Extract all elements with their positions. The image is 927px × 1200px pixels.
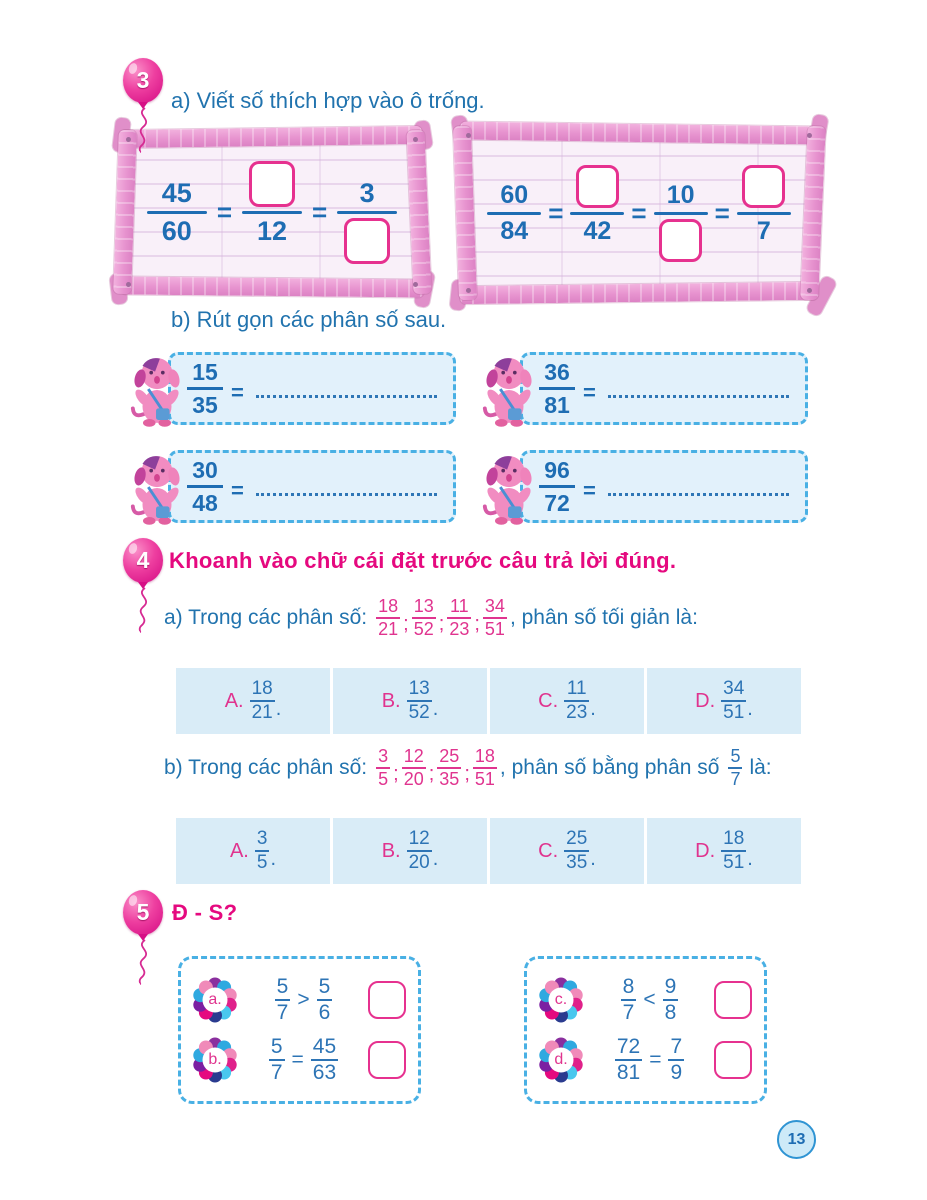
denominator: 42 (584, 219, 612, 244)
answer-box[interactable] (368, 981, 406, 1019)
fraction-step-3: 7 (737, 152, 791, 275)
numerator: 36 (544, 360, 570, 384)
fraction: 3451 (483, 597, 507, 639)
ex4-title: Khoanh vào chữ cái đặt trước câu trả lời… (169, 548, 676, 574)
numerator: 10 (667, 183, 695, 208)
true-false-box-1: a. 57 > 56 b. 57 = 4563 (178, 956, 421, 1104)
answer-frame-2: 60 84 = 42 = 10 = 7 (456, 124, 822, 302)
numerator: 60 (500, 183, 528, 208)
numerator: 3 (360, 180, 375, 207)
nail-dot (126, 282, 131, 287)
answer-line[interactable] (256, 493, 437, 496)
denominator: 7 (757, 219, 771, 244)
ex4-question-a: a) Trong các phân số: 1821 ; 1352 ; 1123… (164, 597, 698, 639)
fraction: 2535 (437, 747, 461, 789)
balloon-icon: 5 (123, 890, 163, 935)
fraction-bar (539, 485, 575, 488)
equals-sign: = (217, 197, 232, 228)
fraction: 1851 (473, 747, 497, 789)
fraction: 98 (663, 976, 679, 1024)
equals-sign: = (231, 478, 244, 504)
fraction-step-1: 42 (570, 152, 624, 275)
fraction: 57 (269, 1036, 285, 1084)
equation-2: 60 84 = 42 = 10 = 7 (487, 152, 791, 275)
simplify-box-4: 96 72 = (520, 450, 808, 523)
dog-mascot-icon (128, 352, 186, 430)
fraction-bar (187, 387, 223, 390)
exercise-number: 3 (137, 67, 150, 94)
denominator: 48 (192, 491, 218, 515)
true-false-box-2: c. 87 < 98 d. 7281 = 79 (524, 956, 767, 1104)
denominator: 81 (544, 393, 570, 417)
fraction: 1821 (250, 679, 275, 723)
dog-mascot-icon (480, 352, 538, 430)
flower-label-icon: b. (191, 1036, 239, 1084)
statement-d: d. 7281 = 79 (537, 1036, 752, 1084)
fraction: 1851 (721, 829, 746, 873)
ex4-options-a: A. 1821 . B. 1352 . C. 1123 . D. 3451 . (176, 668, 801, 734)
equals-sign: = (583, 380, 596, 406)
answer-line[interactable] (608, 395, 789, 398)
answer-box[interactable] (576, 165, 619, 208)
balloon-icon: 4 (123, 538, 163, 583)
fraction-bar (187, 485, 223, 488)
denominator: 60 (162, 218, 192, 245)
nail-dot (466, 288, 471, 293)
nail-dot (807, 288, 812, 293)
exercise-4-balloon-badge: 4 (120, 538, 166, 633)
answer-box[interactable] (714, 981, 752, 1019)
option-b[interactable]: B. 1352 . (333, 668, 487, 734)
fraction: 30 48 (187, 458, 223, 515)
balloon-icon: 3 (123, 58, 163, 103)
simplify-box-1: 15 35 = (168, 352, 456, 425)
fraction: 1220 (402, 747, 426, 789)
exercise-3-balloon-badge: 3 (120, 58, 166, 153)
simplify-box-2: 36 81 = (520, 352, 808, 425)
equals-sign: = (631, 198, 646, 229)
exercise-number: 4 (137, 547, 150, 574)
flower-label-icon: c. (537, 976, 585, 1024)
denominator: 35 (192, 393, 218, 417)
fraction: 57 (275, 976, 291, 1024)
answer-box[interactable] (368, 1041, 406, 1079)
ex3-part-b-title: b) Rút gọn các phân số sau. (171, 307, 446, 333)
exercise-5-balloon-badge: 5 (120, 890, 166, 985)
equals-sign: = (548, 198, 563, 229)
fraction: 1352 (412, 597, 436, 639)
denominator: 72 (544, 491, 570, 515)
fraction: 4563 (311, 1036, 338, 1084)
statement-letter: b. (191, 1036, 239, 1084)
balloon-string (131, 939, 155, 985)
fraction: 1220 (407, 829, 432, 873)
equals-sign: = (715, 198, 730, 229)
option-a[interactable]: A. 1821 . (176, 668, 330, 734)
fraction: 7281 (615, 1036, 642, 1084)
answer-box[interactable] (249, 161, 295, 207)
statement-c: c. 87 < 98 (537, 976, 752, 1024)
answer-line[interactable] (256, 395, 437, 398)
flower-label-icon: a. (191, 976, 239, 1024)
fraction: 35 (255, 829, 270, 873)
fraction-step-1: 12 (242, 151, 302, 274)
ex4-options-b: A. 35 . B. 1220 . C. 2535 . D. 1851 . (176, 818, 801, 884)
equation-1: 45 60 = 12 = 3 (147, 151, 397, 274)
answer-box[interactable] (344, 218, 390, 264)
statement-letter: c. (537, 976, 585, 1024)
numerator: 30 (192, 458, 218, 482)
flower-label-icon: d. (537, 1036, 585, 1084)
statement-letter: a. (191, 976, 239, 1024)
equals-sign: = (583, 478, 596, 504)
comparison-operator: > (297, 988, 309, 1012)
equals-sign: = (312, 197, 327, 228)
fraction: 79 (668, 1036, 684, 1084)
denominator: 12 (257, 218, 287, 245)
fraction: 56 (317, 976, 333, 1024)
numerator: 15 (192, 360, 218, 384)
comparison-operator: = (292, 1048, 304, 1072)
numerator: 96 (544, 458, 570, 482)
fraction: 3451 (721, 679, 746, 723)
fraction-given: 45 60 (147, 151, 207, 274)
option-d[interactable]: D. 3451 . (647, 668, 801, 734)
fraction: 15 35 (187, 360, 223, 417)
option-b[interactable]: B. 1220 . (333, 818, 487, 884)
answer-box[interactable] (659, 219, 702, 262)
dog-mascot-icon (480, 450, 538, 528)
fraction: 96 72 (539, 458, 575, 515)
ex3-part-a-title: a) Viết số thích hợp vào ô trống. (171, 88, 485, 114)
option-c[interactable]: C. 2535 . (490, 818, 644, 884)
fraction-given: 60 84 (487, 152, 541, 275)
dog-mascot-icon (128, 450, 186, 528)
fraction-step-2: 3 (337, 151, 397, 274)
option-c[interactable]: C. 1123 . (490, 668, 644, 734)
balloon-string (131, 587, 155, 633)
statement-letter: d. (537, 1036, 585, 1084)
option-d[interactable]: D. 1851 . (647, 818, 801, 884)
balloon-string (131, 107, 155, 153)
answer-line[interactable] (608, 493, 789, 496)
fraction-step-2: 10 (654, 152, 708, 275)
nail-dot (413, 282, 418, 287)
answer-frame-1: 45 60 = 12 = 3 (116, 128, 428, 296)
fraction: 35 (376, 747, 390, 789)
page-number: 13 (777, 1120, 816, 1159)
statement-b: b. 57 = 4563 (191, 1036, 406, 1084)
fraction: 36 81 (539, 360, 575, 417)
fraction-bar (539, 387, 575, 390)
answer-box[interactable] (714, 1041, 752, 1079)
comparison-operator: = (649, 1048, 661, 1072)
equals-sign: = (231, 380, 244, 406)
exercise-number: 5 (137, 899, 150, 926)
ex4-question-b: b) Trong các phân số: 35 ; 1220 ; 2535 ;… (164, 747, 772, 789)
answer-box[interactable] (742, 165, 785, 208)
fraction: 1123 (564, 679, 589, 723)
statement-a: a. 57 > 56 (191, 976, 406, 1024)
denominator: 84 (500, 219, 528, 244)
fraction: 2535 (564, 829, 589, 873)
ex5-title: Đ - S? (172, 900, 237, 926)
fraction: 57 (728, 747, 742, 789)
fraction: 1821 (376, 597, 400, 639)
fraction: 1352 (407, 679, 432, 723)
fraction: 87 (621, 976, 637, 1024)
option-a[interactable]: A. 35 . (176, 818, 330, 884)
fraction: 1123 (447, 597, 471, 639)
comparison-operator: < (643, 988, 655, 1012)
numerator: 45 (162, 180, 192, 207)
simplify-box-3: 30 48 = (168, 450, 456, 523)
